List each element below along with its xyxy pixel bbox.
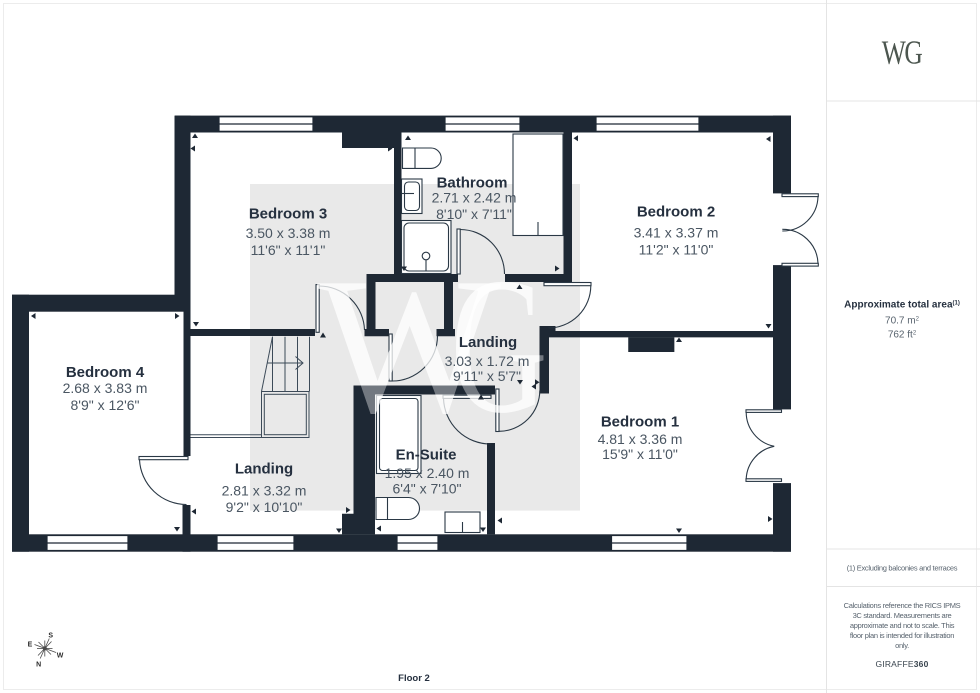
svg-text:9'11" x 5'7": 9'11" x 5'7" bbox=[453, 368, 521, 384]
svg-text:Bedroom 1: Bedroom 1 bbox=[601, 414, 679, 431]
svg-text:Bedroom 2: Bedroom 2 bbox=[637, 204, 715, 221]
svg-text:3C standard. Measurements are: 3C standard. Measurements are bbox=[853, 611, 952, 620]
svg-text:70.7 m2: 70.7 m2 bbox=[885, 316, 920, 327]
svg-text:9'2" x 10'10": 9'2" x 10'10" bbox=[226, 499, 303, 515]
svg-text:2.68 x 3.83 m: 2.68 x 3.83 m bbox=[63, 380, 148, 396]
svg-text:E: E bbox=[28, 642, 33, 649]
svg-text:W: W bbox=[57, 653, 64, 660]
svg-text:S: S bbox=[48, 633, 53, 640]
svg-text:Approximate total area(1): Approximate total area(1) bbox=[844, 300, 960, 311]
svg-text:N: N bbox=[36, 662, 41, 669]
svg-text:1.95 x 2.40 m: 1.95 x 2.40 m bbox=[385, 465, 470, 481]
svg-text:6'4" x 7'10": 6'4" x 7'10" bbox=[393, 481, 462, 497]
svg-text:2.81 x 3.32 m: 2.81 x 3.32 m bbox=[222, 483, 307, 499]
svg-text:Calculations reference the RIC: Calculations reference the RICS IPMS bbox=[844, 601, 961, 610]
svg-text:762 ft2: 762 ft2 bbox=[888, 330, 917, 341]
svg-text:3.50 x 3.38 m: 3.50 x 3.38 m bbox=[246, 225, 331, 241]
svg-text:(1) Excluding balconies and te: (1) Excluding balconies and terraces bbox=[847, 564, 958, 573]
svg-text:3.03 x 1.72 m: 3.03 x 1.72 m bbox=[445, 353, 530, 369]
svg-text:Landing: Landing bbox=[459, 334, 517, 351]
svg-text:Landing: Landing bbox=[235, 461, 293, 478]
svg-text:11'6" x 11'1": 11'6" x 11'1" bbox=[251, 242, 326, 258]
svg-text:GIRAFFE360: GIRAFFE360 bbox=[875, 659, 928, 669]
svg-text:4.81 x 3.36 m: 4.81 x 3.36 m bbox=[598, 431, 683, 447]
svg-text:approximate and not to scale.: approximate and not to scale. This bbox=[850, 621, 955, 630]
svg-text:8'9" x 12'6": 8'9" x 12'6" bbox=[71, 397, 140, 413]
svg-text:Bedroom 3: Bedroom 3 bbox=[249, 206, 327, 223]
svg-text:En-Suite: En-Suite bbox=[396, 447, 457, 464]
svg-text:15'9" x 11'0": 15'9" x 11'0" bbox=[602, 446, 678, 462]
svg-text:3.41 x 3.37 m: 3.41 x 3.37 m bbox=[634, 225, 719, 241]
svg-text:8'10" x 7'11": 8'10" x 7'11" bbox=[436, 206, 512, 222]
svg-text:11'2" x 11'0": 11'2" x 11'0" bbox=[639, 242, 714, 258]
svg-text:floor plan is intended for ill: floor plan is intended for illustration bbox=[850, 631, 954, 640]
svg-text:Floor 2: Floor 2 bbox=[398, 673, 430, 684]
svg-text:2.71 x 2.42 m: 2.71 x 2.42 m bbox=[432, 190, 517, 206]
svg-text:only.: only. bbox=[895, 641, 909, 650]
svg-text:WG: WG bbox=[882, 33, 922, 71]
svg-text:Bedroom 4: Bedroom 4 bbox=[66, 364, 145, 381]
